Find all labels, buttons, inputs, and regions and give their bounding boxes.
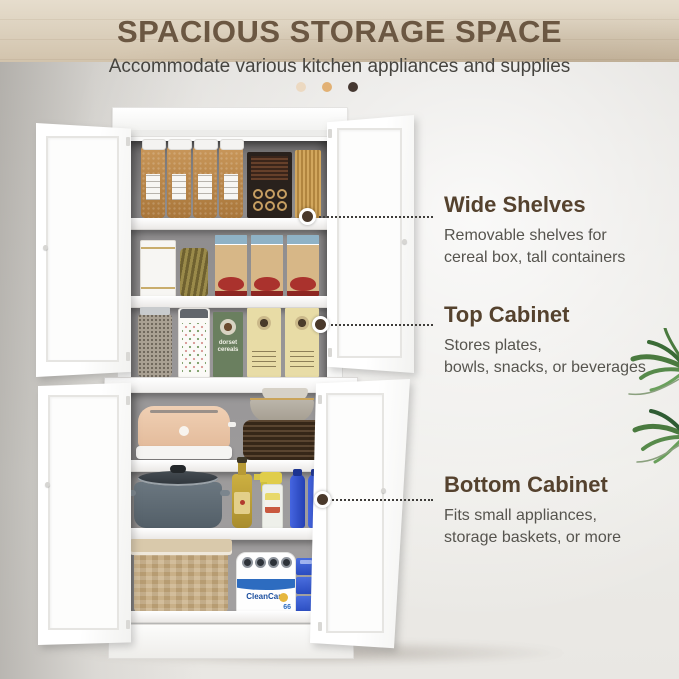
door-hinge bbox=[328, 129, 332, 138]
canister-trim bbox=[141, 247, 175, 249]
callout-title: Wide Shelves bbox=[444, 192, 654, 218]
product-infographic: SPACIOUS STORAGE SPACE Accommodate vario… bbox=[0, 0, 679, 679]
floral-pattern bbox=[182, 323, 206, 374]
stock-pot bbox=[134, 482, 222, 528]
door-face bbox=[38, 382, 131, 645]
jar-label bbox=[195, 170, 215, 204]
pack-duck-art bbox=[279, 593, 288, 602]
leader-line bbox=[314, 216, 433, 218]
door-hinge bbox=[126, 137, 130, 146]
cabinet-door-top-left bbox=[36, 123, 131, 377]
door-hinge bbox=[318, 395, 322, 404]
dorset-cereals-box: dorset cereals bbox=[213, 312, 243, 377]
callout-top-cabinet: Top Cabinet Stores plates, bowls, snacks… bbox=[444, 302, 654, 379]
cereal-motif bbox=[295, 316, 309, 330]
door-knob bbox=[43, 245, 48, 250]
wicker-basket bbox=[134, 548, 228, 612]
pasta-rack bbox=[247, 152, 292, 218]
door-knob bbox=[402, 239, 407, 244]
door-hinge bbox=[126, 352, 130, 361]
storage-jar bbox=[219, 146, 243, 218]
cereal-box-banner bbox=[215, 235, 247, 245]
pasta-nests bbox=[249, 184, 290, 215]
wicker-basket-lid bbox=[130, 539, 232, 555]
canister-lid bbox=[180, 309, 208, 318]
carousel-dots bbox=[296, 82, 358, 92]
door-knob bbox=[381, 488, 386, 493]
cereal-box bbox=[215, 235, 247, 296]
door-panel bbox=[48, 395, 119, 630]
toaster-dial bbox=[179, 426, 189, 436]
cabinet-door-top-right bbox=[327, 115, 414, 373]
pack-wave-art bbox=[236, 579, 296, 590]
jar-label bbox=[169, 170, 189, 204]
jar-label bbox=[143, 170, 163, 204]
jar-lid bbox=[142, 139, 166, 150]
leader-dot bbox=[299, 208, 316, 225]
storage-jar bbox=[193, 146, 217, 218]
leader-dot bbox=[312, 316, 329, 333]
door-panel bbox=[326, 393, 384, 633]
door-face bbox=[36, 123, 131, 377]
toaster-base bbox=[136, 446, 232, 459]
jar-lid bbox=[168, 139, 192, 150]
detergent-bottle bbox=[290, 474, 305, 528]
jar-lid bbox=[140, 307, 170, 315]
cabinet-crown bbox=[112, 107, 348, 132]
cabinet-door-bottom-left bbox=[38, 382, 131, 645]
bottle-neck bbox=[238, 462, 246, 475]
storage-jar bbox=[141, 146, 165, 218]
page-title: SPACIOUS STORAGE SPACE bbox=[0, 14, 679, 50]
door-hinge bbox=[318, 622, 322, 631]
paper-towel-pack: CleanCare 66 bbox=[236, 552, 296, 614]
door-face bbox=[327, 115, 414, 373]
pack-count-label: 66 bbox=[283, 604, 291, 611]
towel-rolls bbox=[242, 557, 292, 568]
cereal-box-banner bbox=[287, 235, 319, 245]
jar-lid bbox=[194, 139, 218, 150]
leader-dot bbox=[314, 491, 331, 508]
cereal-motif bbox=[257, 316, 271, 330]
page-subtitle: Accommodate various kitchen appliances a… bbox=[0, 56, 679, 78]
bottle-cap bbox=[237, 457, 247, 463]
door-knob bbox=[45, 482, 50, 487]
cereal-bowl-art bbox=[254, 277, 280, 291]
cereal-box bbox=[287, 235, 319, 296]
spray-bottle bbox=[262, 484, 283, 530]
door-face bbox=[310, 379, 410, 651]
label-text-lines bbox=[290, 351, 314, 369]
callout-title: Bottom Cabinet bbox=[444, 472, 654, 498]
pasta-sticks bbox=[251, 156, 288, 180]
door-panel bbox=[46, 136, 119, 362]
pot-lid bbox=[138, 471, 218, 486]
cereal-bowl-art bbox=[218, 277, 244, 291]
callout-bottom-cabinet: Bottom Cabinet Fits small appliances, st… bbox=[444, 472, 654, 549]
pot-handle bbox=[220, 490, 230, 496]
oil-bottle bbox=[232, 474, 252, 528]
cereal-box bbox=[251, 235, 283, 296]
spray-label bbox=[265, 493, 280, 513]
bottle-cap bbox=[293, 469, 302, 476]
floral-canister bbox=[178, 308, 210, 379]
cabinet-door-bottom-right bbox=[310, 379, 410, 651]
callout-description: Removable shelves for cereal box, tall c… bbox=[444, 225, 654, 269]
muesli-box bbox=[247, 308, 281, 377]
kitchen-canister bbox=[140, 240, 176, 298]
jar-label bbox=[221, 170, 241, 204]
callout-title: Top Cabinet bbox=[444, 302, 654, 328]
canister-trim bbox=[141, 287, 175, 289]
cereal-bowl-art bbox=[290, 277, 316, 291]
door-hinge bbox=[126, 620, 130, 629]
door-hinge bbox=[328, 348, 332, 357]
label-text-lines bbox=[252, 351, 276, 369]
callout-wide-shelves: Wide Shelves Removable shelves for cerea… bbox=[444, 192, 654, 269]
cereal-box-banner bbox=[251, 235, 283, 245]
callout-description: Fits small appliances, storage baskets, … bbox=[444, 505, 654, 549]
toaster-slot bbox=[150, 410, 218, 413]
label-seal bbox=[240, 500, 245, 505]
toaster bbox=[138, 406, 230, 448]
pot-lid-knob bbox=[170, 465, 186, 473]
storage-jar bbox=[167, 146, 191, 218]
snack-bag bbox=[180, 248, 208, 296]
toaster-lever bbox=[228, 422, 236, 427]
bowl-gold-rim bbox=[250, 398, 314, 400]
leader-line bbox=[329, 499, 433, 501]
cereal-box-label: dorset cereals bbox=[213, 340, 243, 354]
carousel-dot bbox=[296, 82, 306, 92]
seed-jar bbox=[138, 314, 172, 377]
callout-description: Stores plates, bowls, snacks, or beverag… bbox=[444, 335, 654, 379]
door-hinge bbox=[126, 396, 130, 405]
jar-lid bbox=[220, 139, 244, 150]
leader-line bbox=[327, 324, 433, 326]
shelf-board bbox=[128, 611, 330, 623]
carousel-dot bbox=[348, 82, 358, 92]
cereal-motif bbox=[220, 319, 236, 335]
carousel-dot bbox=[322, 82, 332, 92]
